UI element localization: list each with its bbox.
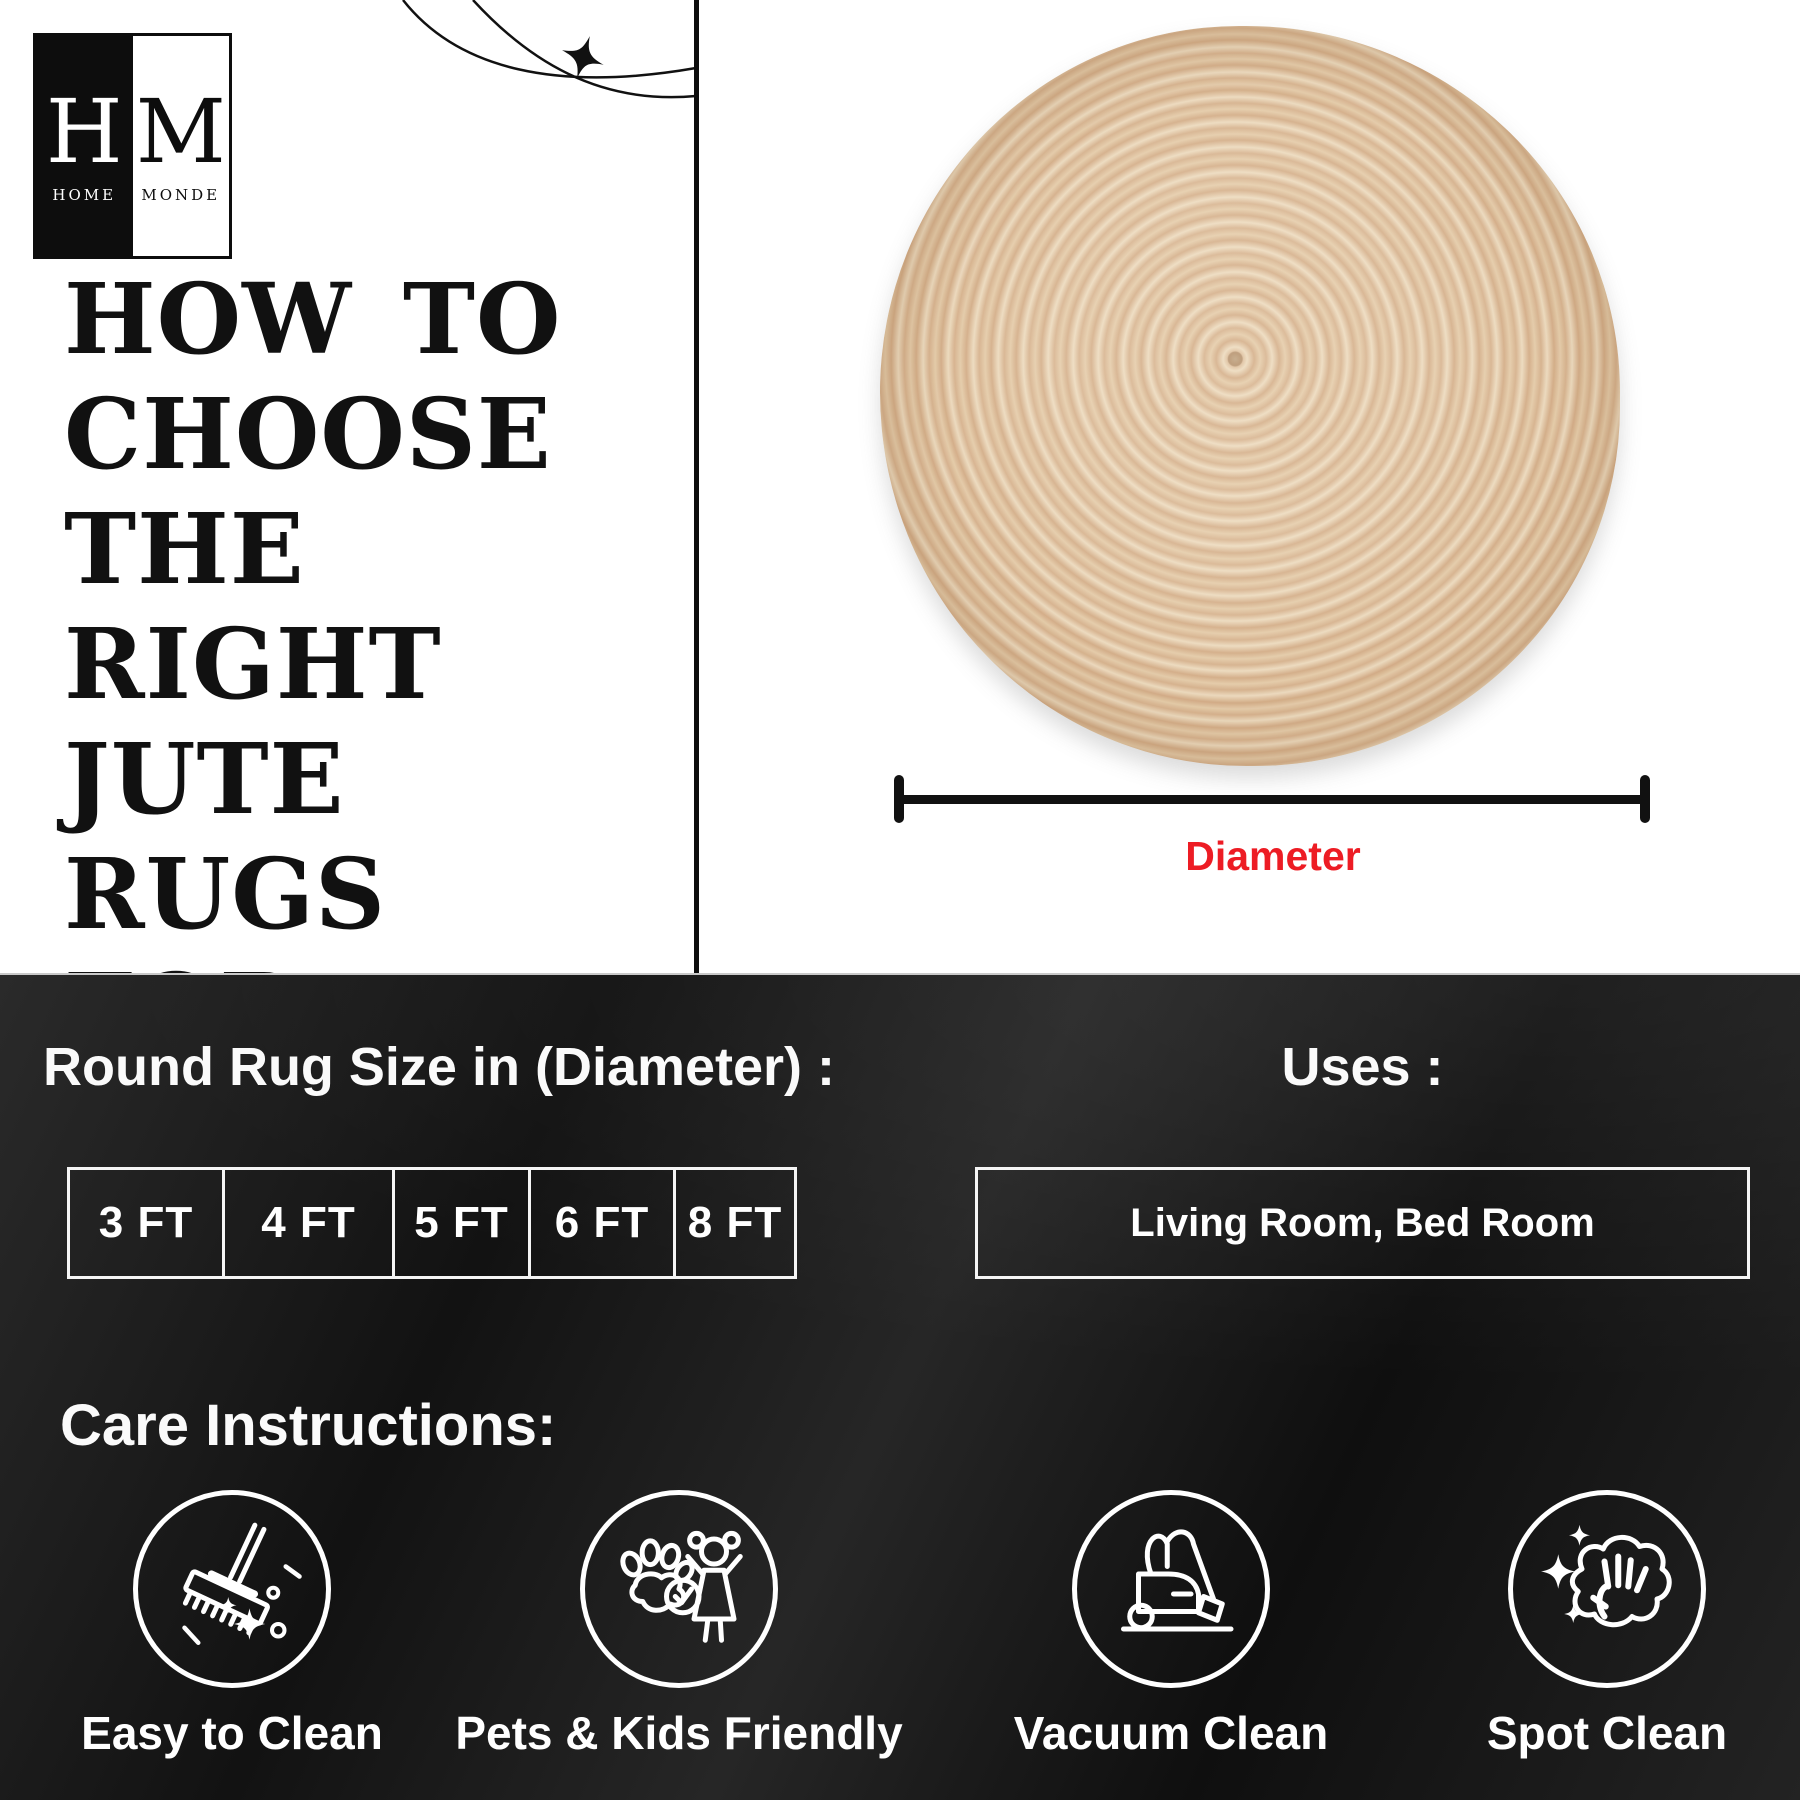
uses-value-box: Living Room, Bed Room <box>975 1167 1750 1279</box>
logo-word-home: HOME <box>52 186 116 204</box>
mop-icon <box>157 1514 307 1664</box>
care-item-vacuum <box>1072 1490 1270 1688</box>
vertical-divider <box>694 0 699 973</box>
pets-kids-icon <box>604 1514 754 1664</box>
title-line: CHOOSE <box>64 377 664 492</box>
airplane-swoosh-icon <box>298 0 698 170</box>
infographic-canvas: H HOME M MONDE HOW TO CHOOSE THE RIGHT J… <box>0 0 1800 1800</box>
logo-monogram-h: H <box>46 88 123 176</box>
title-line: HOW TO <box>64 262 664 377</box>
spot-clean-icon <box>1532 1514 1682 1664</box>
size-option-3ft: 3 FT <box>70 1170 225 1276</box>
care-section-heading: Care Instructions: <box>60 1392 556 1459</box>
care-label-pets-kids: Pets & Kids Friendly <box>449 1706 909 1760</box>
size-options-table: 3 FT 4 FT 5 FT 6 FT 8 FT <box>67 1167 797 1279</box>
title-line: THE RIGHT <box>64 492 664 722</box>
size-option-8ft: 8 FT <box>676 1170 794 1276</box>
care-label-easy-to-clean: Easy to Clean <box>2 1706 462 1760</box>
care-item-pets-kids <box>580 1490 778 1688</box>
uses-value: Living Room, Bed Room <box>1130 1201 1594 1246</box>
logo-monogram-m: M <box>136 88 226 176</box>
size-option-4ft: 4 FT <box>225 1170 395 1276</box>
diameter-measure-line <box>898 795 1646 804</box>
diameter-label: Diameter <box>1023 833 1523 880</box>
title-line: JUTE RUGS <box>64 722 664 952</box>
size-option-6ft: 6 FT <box>531 1170 676 1276</box>
logo-word-monde: MONDE <box>141 186 220 204</box>
brand-logo: H HOME M MONDE <box>33 33 232 259</box>
care-label-vacuum: Vacuum Clean <box>941 1706 1401 1760</box>
care-item-easy-to-clean <box>133 1490 331 1688</box>
vacuum-icon <box>1096 1514 1246 1664</box>
logo-right-panel: M MONDE <box>133 36 230 256</box>
care-item-spot-clean <box>1508 1490 1706 1688</box>
logo-left-panel: H HOME <box>36 36 133 256</box>
round-jute-rug-image <box>880 26 1620 766</box>
diameter-tick-left <box>894 775 904 823</box>
uses-section-heading: Uses : <box>975 1036 1750 1098</box>
size-section-heading: Round Rug Size in (Diameter) : <box>43 1036 835 1098</box>
size-option-5ft: 5 FT <box>395 1170 531 1276</box>
diameter-tick-right <box>1640 775 1650 823</box>
care-label-spot-clean: Spot Clean <box>1377 1706 1800 1760</box>
